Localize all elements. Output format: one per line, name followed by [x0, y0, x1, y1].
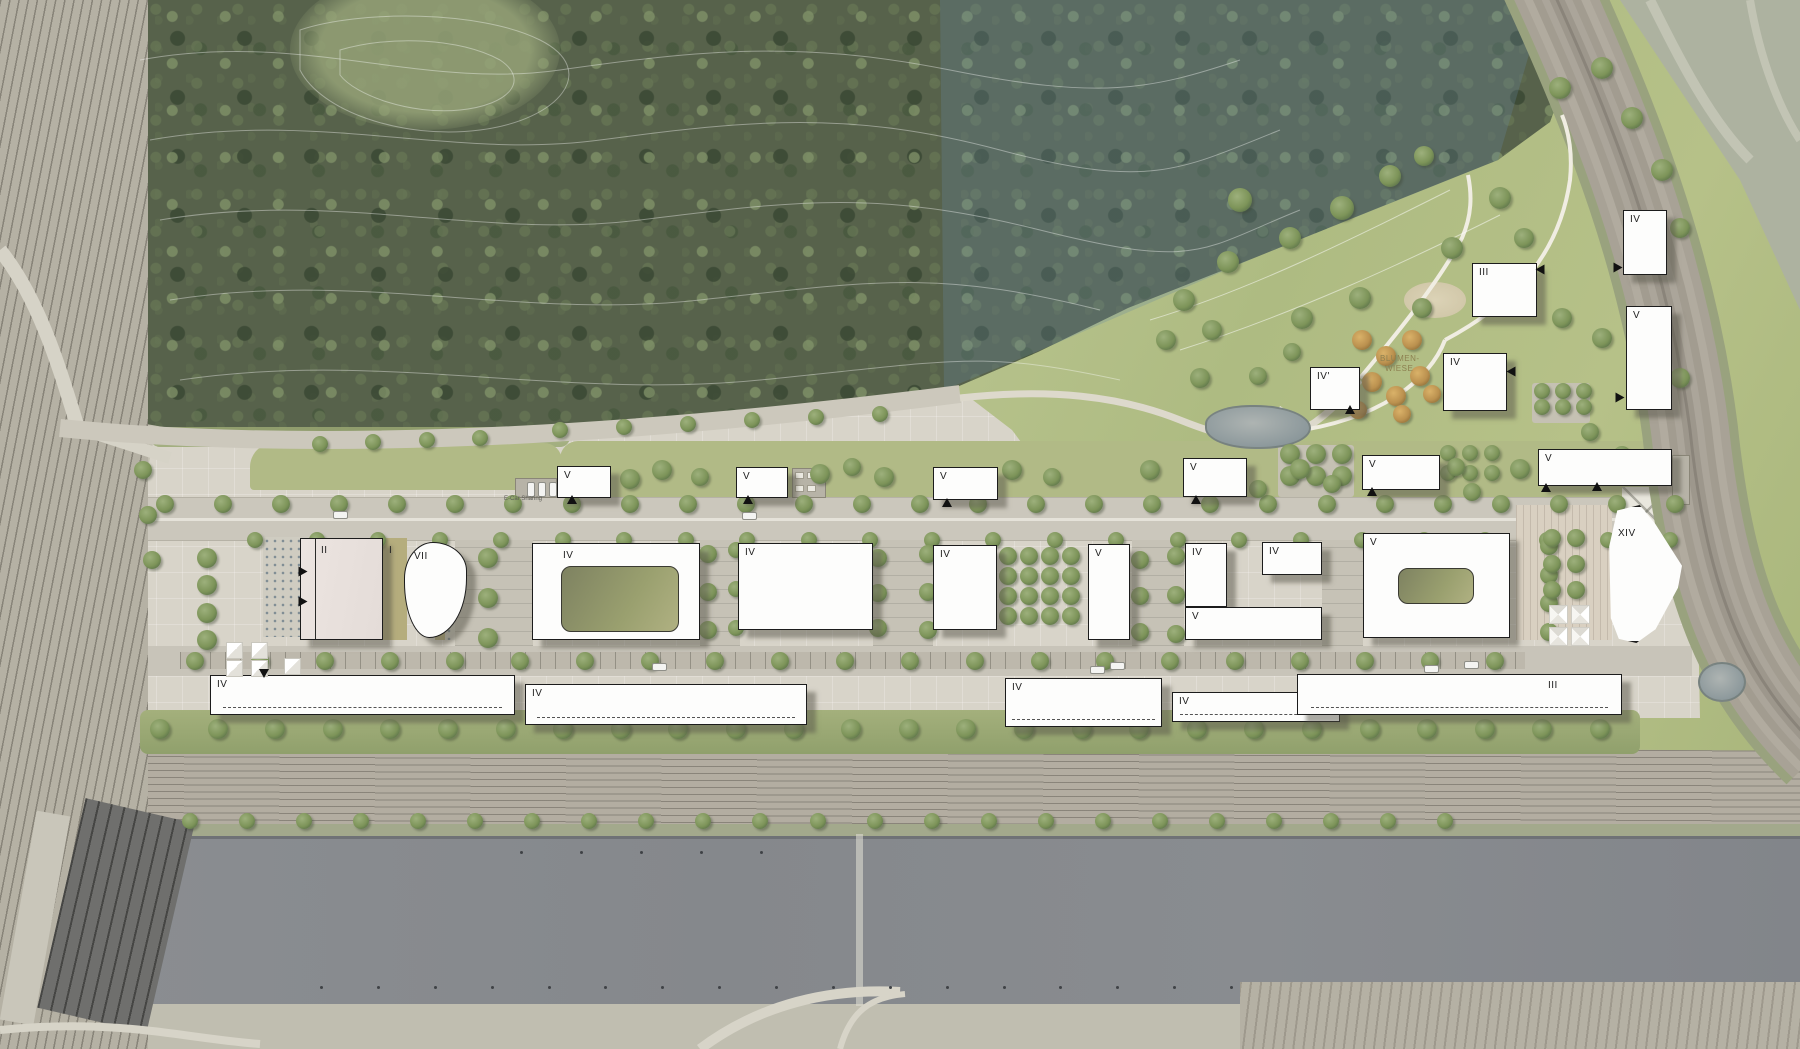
tree: [1543, 555, 1561, 573]
tree: [1486, 652, 1504, 670]
building-IV-19: IV: [933, 545, 997, 630]
ecar-sharing-label: E-Car Sharing: [504, 495, 542, 504]
tree: [999, 587, 1017, 605]
tree: [1062, 567, 1080, 585]
tree: [1666, 495, 1684, 513]
building-label: V: [1190, 463, 1197, 473]
mooring-post: [760, 851, 763, 854]
tree: [652, 460, 672, 480]
tree: [552, 422, 568, 438]
tree: [1152, 813, 1168, 829]
car: [549, 482, 557, 497]
tree: [1323, 813, 1339, 829]
tree: [214, 495, 232, 513]
tree: [1552, 308, 1572, 328]
building-V-7: V: [1626, 306, 1672, 410]
tree: [836, 652, 854, 670]
tree: [472, 430, 488, 446]
tree: [1043, 468, 1061, 486]
rooftop-unit: [795, 472, 804, 479]
tree: [699, 621, 717, 639]
tree: [1173, 289, 1195, 311]
entrance-arrow: [1536, 265, 1545, 275]
tree: [1484, 445, 1500, 461]
tree: [1376, 495, 1394, 513]
tree: [134, 461, 152, 479]
tree: [186, 652, 204, 670]
entrance-arrow: [743, 495, 753, 504]
arcade-line: [1012, 719, 1155, 720]
tree: [901, 652, 919, 670]
tree: [966, 652, 984, 670]
tree: [1266, 813, 1282, 829]
building-IV'-10: IV': [1310, 367, 1360, 410]
tree: [1041, 567, 1059, 585]
tree: [1462, 445, 1478, 461]
mooring-post: [580, 851, 583, 854]
building-V-2: V: [933, 467, 998, 500]
orange-tree: [1386, 386, 1406, 406]
tree: [1290, 459, 1310, 479]
tree: [1041, 607, 1059, 625]
building-V-14: V: [1185, 607, 1322, 640]
tree: [1291, 307, 1313, 329]
tree: [1670, 368, 1690, 388]
tree: [1249, 367, 1267, 385]
building-label: IV: [1269, 547, 1279, 557]
building-V-3: V: [1183, 458, 1247, 497]
pond: [1205, 405, 1311, 449]
tree: [1576, 383, 1592, 399]
tree: [1441, 237, 1463, 259]
canopy-square: [226, 660, 243, 677]
tree: [1414, 146, 1434, 166]
building-IV-12: IV: [1185, 543, 1227, 607]
tree: [1434, 495, 1452, 513]
mooring-post: [548, 986, 551, 989]
tree: [1062, 547, 1080, 565]
tree: [381, 652, 399, 670]
mooring-post: [320, 986, 323, 989]
building-IV-6: IV: [1623, 210, 1667, 275]
tree: [1492, 495, 1510, 513]
tree: [1534, 399, 1550, 415]
tree: [1549, 77, 1571, 99]
mooring-post: [520, 851, 523, 854]
building-label: IV: [1192, 548, 1202, 558]
tree: [496, 719, 516, 739]
tree: [691, 468, 709, 486]
tree: [1228, 188, 1252, 212]
tree: [1020, 547, 1038, 565]
building-III-8: III: [1472, 263, 1537, 317]
building-label: IV: [940, 550, 950, 560]
tree: [1170, 532, 1186, 548]
tree: [1437, 813, 1453, 829]
car: [1110, 662, 1125, 670]
canopy-square: [284, 658, 301, 675]
tree: [1590, 719, 1610, 739]
tree: [872, 406, 888, 422]
tree: [1543, 581, 1561, 599]
tree: [1047, 532, 1063, 548]
parcel-one-label: I: [389, 546, 392, 556]
arcade-line: [1311, 707, 1608, 708]
tree: [446, 652, 464, 670]
building-label: VII: [414, 552, 428, 562]
tree: [576, 652, 594, 670]
tree: [150, 719, 170, 739]
tree: [771, 652, 789, 670]
pyramid-canopy: [1549, 605, 1568, 624]
blumenwiese-label-line2: WIESE: [1385, 364, 1413, 373]
pyramid-canopy: [1549, 627, 1568, 646]
tree: [1555, 383, 1571, 399]
tree: [853, 495, 871, 513]
tree: [1567, 555, 1585, 573]
tree: [616, 419, 632, 435]
building-label: IV: [1630, 215, 1640, 225]
mooring-post: [700, 851, 703, 854]
tree: [843, 458, 861, 476]
inner-courtyard: [561, 566, 679, 632]
mooring-post: [889, 986, 892, 989]
tree: [296, 813, 312, 829]
tree: [981, 813, 997, 829]
tree: [1020, 567, 1038, 585]
tree: [1534, 383, 1550, 399]
tree: [1283, 343, 1301, 361]
building-V-11: V: [1088, 544, 1130, 640]
tree: [810, 464, 830, 484]
tree: [1323, 475, 1341, 493]
building-label: IV': [1317, 372, 1330, 382]
tree: [353, 813, 369, 829]
car: [652, 663, 667, 671]
building-label: V: [1369, 460, 1376, 470]
building-IV-9: IV: [1443, 353, 1507, 411]
tree: [1190, 368, 1210, 388]
orange-tree: [1423, 385, 1441, 403]
tree: [1379, 165, 1401, 187]
tree: [1651, 159, 1673, 181]
building-label: IV: [217, 680, 227, 690]
building-III-26: III: [1297, 674, 1622, 715]
tree: [438, 719, 458, 739]
building-V-1: V: [736, 467, 788, 498]
tree: [511, 652, 529, 670]
orange-tree: [1362, 372, 1382, 392]
building-label: II: [321, 546, 328, 556]
tree: [1167, 625, 1185, 643]
tree: [419, 432, 435, 448]
tree: [143, 551, 161, 569]
building-IV-22: IV: [210, 675, 515, 715]
tree: [1062, 587, 1080, 605]
tree: [1038, 813, 1054, 829]
mooring-post: [946, 986, 949, 989]
tree: [699, 545, 717, 563]
tree: [1031, 652, 1049, 670]
mooring-post: [1230, 986, 1233, 989]
tree: [1591, 57, 1613, 79]
tree: [478, 628, 498, 648]
rooftop-unit: [795, 485, 804, 492]
building-label: V: [1095, 549, 1102, 559]
tree: [182, 813, 198, 829]
tree: [247, 532, 263, 548]
entrance-arrow: [1507, 367, 1516, 377]
entrance-arrow: [1592, 482, 1602, 491]
tree: [1514, 228, 1534, 248]
building-V-5: V: [1538, 449, 1672, 486]
tree: [1217, 251, 1239, 273]
tree: [208, 719, 228, 739]
building-II-20: II: [300, 538, 383, 640]
tree: [1226, 652, 1244, 670]
entrance-arrow: [1367, 487, 1377, 496]
tree: [680, 416, 696, 432]
building-V-0: V: [557, 466, 611, 498]
pyramid-canopy: [1571, 605, 1590, 624]
entrance-arrow: [1191, 495, 1201, 504]
building-label: IV: [532, 689, 542, 699]
entrance-arrow: [1345, 405, 1355, 414]
tree: [1318, 495, 1336, 513]
tree: [1140, 460, 1160, 480]
tree: [197, 630, 217, 650]
car: [742, 512, 757, 520]
tree: [1020, 587, 1038, 605]
tree: [1131, 551, 1149, 569]
paths-overlay: [0, 0, 1800, 1049]
site-plan-canvas: BLUMEN- WIESE E-Car Sharing I VVVVVVIVVI…: [0, 0, 1800, 1049]
tree: [1161, 652, 1179, 670]
tree: [924, 813, 940, 829]
tree: [312, 436, 328, 452]
tree: [1412, 298, 1432, 318]
building-label: IV: [563, 551, 573, 561]
tree: [1330, 196, 1354, 220]
building-IV-18: IV: [738, 543, 873, 630]
tree: [1484, 465, 1500, 481]
tree: [1302, 719, 1322, 739]
rooftop-unit: [807, 485, 816, 492]
building-label: IV: [1012, 683, 1022, 693]
tree: [197, 603, 217, 623]
tree: [493, 532, 509, 548]
tree: [1380, 813, 1396, 829]
tree: [1062, 607, 1080, 625]
tree: [1356, 652, 1374, 670]
tree: [1156, 330, 1176, 350]
tree: [139, 506, 157, 524]
tree: [1306, 444, 1326, 464]
building-label: V: [1192, 612, 1199, 622]
tree: [156, 495, 174, 513]
tree: [1567, 581, 1585, 599]
mooring-post: [377, 986, 380, 989]
tree: [1279, 227, 1301, 249]
tree: [999, 567, 1017, 585]
tree: [699, 583, 717, 601]
tree: [1002, 460, 1022, 480]
building-label: IV: [745, 548, 755, 558]
tree: [1349, 287, 1371, 309]
tree: [1020, 607, 1038, 625]
tree: [1202, 320, 1222, 340]
contour-lines: [140, 16, 1500, 385]
building-IV-17: IV: [532, 543, 700, 640]
building-label: III: [1548, 681, 1558, 691]
canopy-square: [226, 642, 243, 659]
tree: [795, 495, 813, 513]
building-label: IV: [1179, 697, 1189, 707]
tree: [1510, 459, 1530, 479]
car: [1464, 661, 1479, 669]
tree: [1041, 547, 1059, 565]
tree: [810, 813, 826, 829]
tree: [1621, 107, 1643, 129]
pond: [1698, 662, 1746, 702]
tree: [1131, 623, 1149, 641]
tree: [679, 495, 697, 513]
roof-ridge: [315, 539, 316, 639]
tree: [478, 588, 498, 608]
tree: [1209, 813, 1225, 829]
entrance-arrow: [1616, 393, 1625, 403]
tree: [1167, 547, 1185, 565]
tree: [899, 719, 919, 739]
tree: [620, 469, 640, 489]
mooring-post: [640, 851, 643, 854]
orange-tree: [1393, 405, 1411, 423]
tree: [706, 652, 724, 670]
mooring-post: [775, 986, 778, 989]
mooring-post: [832, 986, 835, 989]
tree: [1475, 719, 1495, 739]
tree: [1581, 423, 1599, 441]
entrance-arrow: [259, 669, 269, 678]
mooring-post: [1003, 986, 1006, 989]
entrance-arrow: [1614, 263, 1623, 273]
orange-tree: [1402, 330, 1422, 350]
tree: [1555, 399, 1571, 415]
tree: [911, 495, 929, 513]
blumenwiese-label-line1: BLUMEN-: [1380, 354, 1420, 363]
tree: [1360, 719, 1380, 739]
building-label: V: [743, 472, 750, 482]
tree: [1576, 399, 1592, 415]
car: [1090, 666, 1105, 674]
building-label: V: [940, 472, 947, 482]
building-V-4: V: [1362, 455, 1440, 490]
tree: [874, 467, 894, 487]
entrance-arrow: [1541, 483, 1551, 492]
pyramid-canopy: [1571, 627, 1590, 646]
tree: [1291, 652, 1309, 670]
tree: [1041, 587, 1059, 605]
building-label: V: [1545, 454, 1552, 464]
canopy-square: [251, 642, 268, 659]
tree: [1670, 218, 1690, 238]
south-roads: [0, 991, 905, 1049]
car: [333, 511, 348, 519]
tree: [1131, 587, 1149, 605]
tree: [1167, 586, 1185, 604]
building-IV-13: IV: [1262, 542, 1322, 575]
tree: [1463, 483, 1481, 501]
arcade-line: [537, 717, 795, 718]
tree: [1447, 458, 1465, 476]
tree: [1489, 187, 1511, 209]
mooring-post: [434, 986, 437, 989]
tree: [478, 548, 498, 568]
tree: [867, 813, 883, 829]
tree: [239, 813, 255, 829]
car: [1424, 665, 1439, 673]
mooring-post: [491, 986, 494, 989]
tree: [999, 547, 1017, 565]
arcade-line: [223, 707, 502, 708]
building-label: V: [564, 471, 571, 481]
building-IV-24: IV: [1005, 678, 1162, 727]
building-label: III: [1479, 268, 1489, 278]
tree: [1249, 480, 1267, 498]
building-label: V: [1370, 538, 1377, 548]
tree: [1332, 444, 1352, 464]
orange-tree: [1352, 330, 1372, 350]
inner-courtyard: [1398, 568, 1474, 604]
tree: [1592, 328, 1612, 348]
entrance-arrow: [299, 567, 308, 577]
entrance-arrow: [299, 597, 308, 607]
building-label: XIV: [1618, 529, 1636, 539]
tree: [1543, 529, 1561, 547]
building-V-15: V: [1363, 533, 1510, 638]
tree: [1567, 529, 1585, 547]
building-IV-23: IV: [525, 684, 807, 725]
building-label: V: [1633, 311, 1640, 321]
tree: [323, 719, 343, 739]
tree: [197, 548, 217, 568]
entrance-arrow: [567, 495, 577, 504]
entrance-arrow: [942, 498, 952, 507]
tree: [1095, 813, 1111, 829]
tree: [621, 495, 639, 513]
tree: [1187, 719, 1207, 739]
building-label: IV: [1450, 358, 1460, 368]
tree: [1550, 495, 1568, 513]
tree: [999, 607, 1017, 625]
tree: [316, 652, 334, 670]
